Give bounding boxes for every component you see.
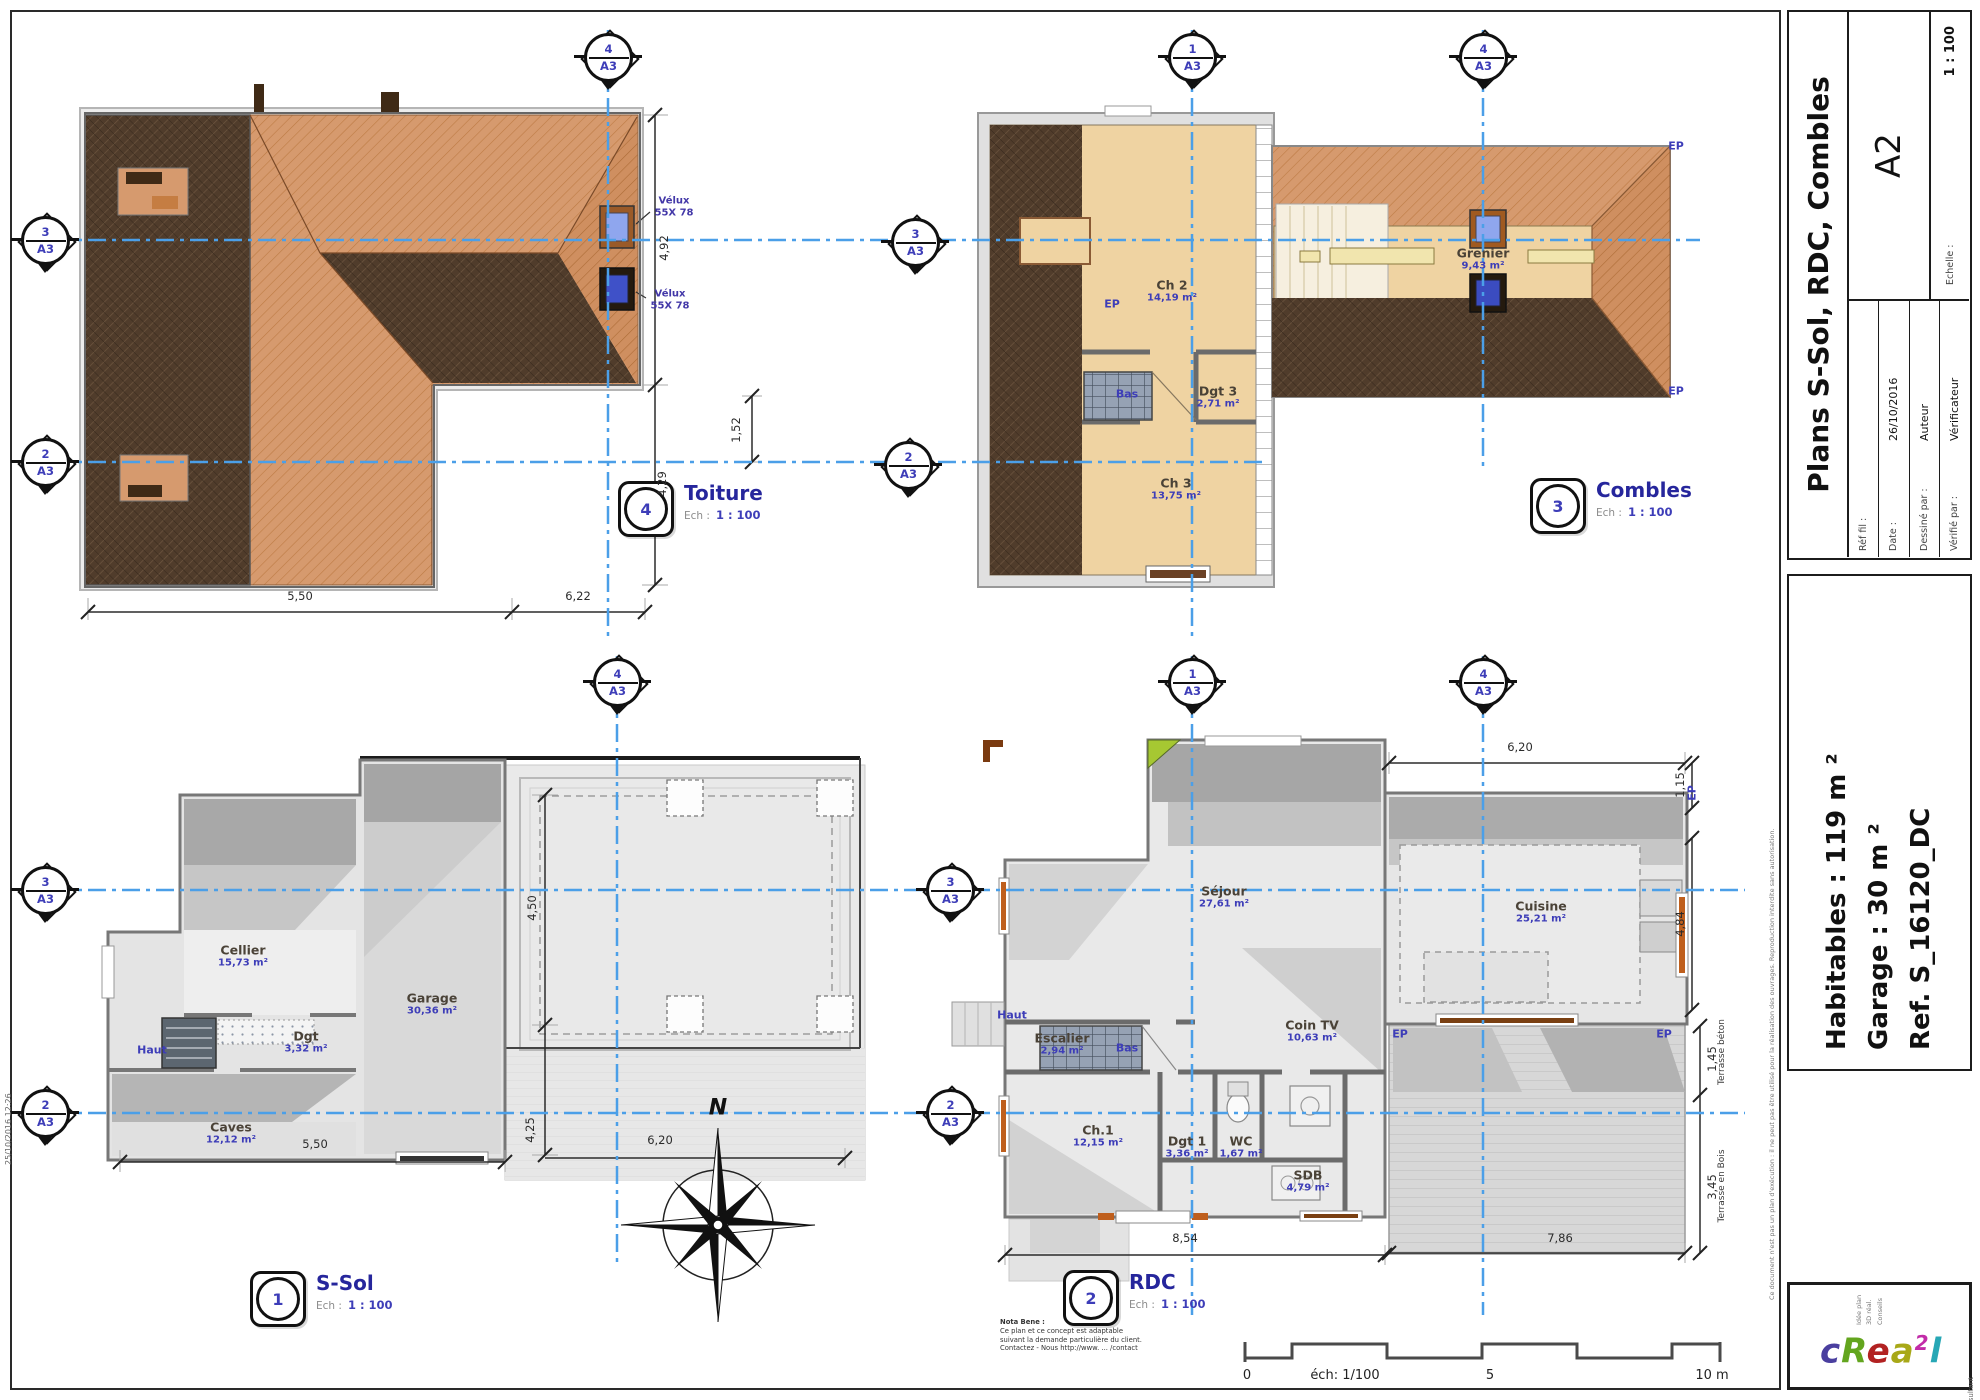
plan-title: RDC [1129,1270,1206,1294]
room-label-cellier: Cellier15,73 m² [218,943,268,970]
area-garage: Garage : 30 m ² [1864,594,1894,1050]
ep-label: EP [1668,385,1684,398]
title-block: Plans S-Sol, RDC, Combles Réf fil : Date… [1787,10,1972,560]
section-marker-3: 3A3 [16,861,74,919]
plan-label-toiture: 4 Toiture Ech :1 : 100 [618,481,763,537]
plan-number-icon: 3 [1530,478,1586,534]
print-timestamp: 25/10/2016 12:26 [4,1025,13,1165]
ep-label: EP [1104,298,1120,311]
room-label-sdb: SDB4,79 m² [1287,1168,1330,1195]
dim: 6,20 [647,1133,673,1147]
plan-drawing-canvas [0,0,1980,1400]
area-habitables: Habitables : 119 m ² [1822,594,1852,1050]
dim: 1,52 [729,417,743,443]
sheet-scale: Echelle :1 : 100 [1931,12,1969,299]
disclaimer-strip: Ce document n'est pas un plan d'exécutio… [1768,610,1776,1300]
areas-block: Habitables : 119 m ² Garage : 30 m ² Ref… [1787,574,1972,1071]
dim: 5,50 [302,1137,328,1151]
section-marker-3: 3A3 [886,213,944,271]
room-label-ch3: Ch 313,75 m² [1151,476,1201,503]
room-label-dgt: Dgt3,32 m² [285,1029,328,1056]
ssol-plan [102,758,865,1322]
title-block-fields: Réf fil : Date :26/10/2016 Dessiné par :… [1849,299,1969,557]
section-marker-3: 3A3 [16,211,74,269]
room-label-sejour: Séjour27,61 m² [1199,884,1249,911]
dim: 8,54 [1172,1231,1198,1245]
crea2l-logo: cRea2l [1820,1331,1942,1371]
logo-box: Idée plan3D réal.Conseils cRea2l © Consu… [1787,1282,1972,1390]
drawing-sheet: 4A3 1A3 4A3 3A3 2A3 3A3 2A3 4A3 1A3 4A3 … [0,0,1980,1400]
stairs [162,1018,216,1068]
dim: 3,45 [1705,1174,1719,1200]
dim: 6,20 [1507,740,1533,754]
nota-bene: Nota Bene : Ce plan et ce concept est ad… [1000,1318,1190,1353]
section-marker-2: 2A3 [16,1084,74,1142]
room-label-coin-tv: Coin TV10,63 m² [1285,1018,1339,1045]
plan-title: Toiture [684,481,763,505]
logo-fine-print: Idée plan3D réal.Conseils [1854,1295,1885,1325]
dim: 4,50 [525,895,539,921]
room-label-wc: WC1,67 m² [1220,1134,1263,1161]
toiture-plan [80,84,668,620]
ep-label: EP [1686,785,1699,801]
room-label-caves: Caves12,12 m² [206,1120,256,1147]
logo-copyright: © Consultant [1967,1377,1975,1400]
ep-label: EP [1656,1028,1672,1041]
room-label-dgt1: Dgt 13,36 m² [1166,1134,1209,1161]
scalebar-zero: 0 [1243,1368,1251,1383]
room-label-ch2: Ch 214,19 m² [1147,278,1197,305]
room-label-escalier: Escalier2,94 m² [1034,1031,1089,1058]
stair-direction-label: Bas [1116,388,1138,401]
dim: 1,15 [1673,772,1687,798]
rdc-plan [952,736,1707,1281]
stair-direction-label: Haut [997,1009,1027,1022]
section-marker-3: 3A3 [921,861,979,919]
plan-reference: Ref. S_16120_DC [1906,594,1936,1050]
dim: 1,45 [1705,1046,1719,1072]
velux-label: Vélux55X 78 [650,289,689,312]
section-marker-1: 1A3 [1163,28,1221,86]
dim: 4,25 [523,1117,537,1143]
section-marker-4: 4A3 [588,653,646,711]
stair-direction-label: Bas [1116,1042,1138,1055]
field-value: Auteur [1918,404,1931,441]
dim: 4,92 [657,235,671,261]
dim: 7,86 [1547,1231,1573,1245]
section-marker-2: 2A3 [879,436,937,494]
stair-direction-label: Haut [137,1044,167,1057]
plan-number-icon: 1 [250,1271,306,1327]
field-value: Vérificateur [1948,378,1961,441]
section-marker-2: 2A3 [16,433,74,491]
room-label-cuisine: Cuisine25,21 m² [1515,899,1566,926]
dim: 6,22 [565,589,591,603]
scale-bar [1245,1342,1720,1362]
plan-label-ssol: 1 S-Sol Ech :1 : 100 [250,1271,393,1327]
dim: 4,84 [1673,911,1687,937]
plan-label-combles: 3 Combles Ech :1 : 100 [1530,478,1692,534]
field-label: Dessiné par : [1919,441,1930,551]
section-marker-2: 2A3 [921,1084,979,1142]
section-marker-4: 4A3 [1454,653,1512,711]
field-label: Date : [1888,441,1899,551]
ep-label: EP [1668,140,1684,153]
room-label-dgt3: Dgt 32,71 m² [1197,384,1240,411]
scalebar-ech: éch: 1/100 [1310,1368,1379,1383]
section-marker-1: 1A3 [1163,653,1221,711]
field-label: Vérifié par : [1949,441,1960,551]
room-label-garage: Garage30,36 m² [407,991,458,1018]
plan-title: Combles [1596,478,1692,502]
ep-label: EP [1392,1028,1408,1041]
north-label: N [709,1096,727,1121]
sheet-format: A2 [1849,12,1931,299]
room-label-grenier: Grenier9,43 m² [1457,246,1510,273]
scalebar-five: 5 [1486,1368,1494,1383]
section-marker-4: 4A3 [1454,28,1512,86]
dim: 5,50 [287,589,313,603]
field-label: Réf fil : [1858,441,1869,551]
field-value: 26/10/2016 [1887,378,1900,441]
plan-title: S-Sol [316,1271,393,1295]
scalebar-ten: 10 m [1695,1368,1728,1383]
velux-label: Vélux55X 78 [654,196,693,219]
dim: 4,29 [655,471,669,497]
section-marker-4: 4A3 [579,28,637,86]
sheet-title: Plans S-Sol, RDC, Combles [1789,12,1849,557]
room-label-ch1: Ch.112,15 m² [1073,1123,1123,1150]
